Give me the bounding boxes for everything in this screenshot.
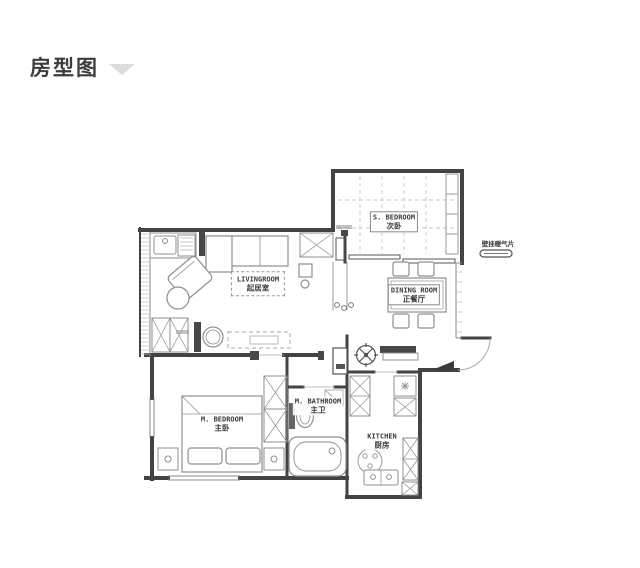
- label-m-bathroom: M. BATHROOM 主卫: [293, 396, 343, 415]
- corridor-wardrobe: [152, 318, 189, 352]
- radiator-symbol: [480, 250, 512, 257]
- floor-plan-image[interactable]: S. BEDROOM 次卧 DINING ROOM 正餐厅 LIVINGROOM…: [0, 0, 640, 568]
- corridor-door-jamb: [194, 322, 201, 352]
- tiny-text-annotation: [336, 225, 352, 229]
- label-living-room: LIVINGROOM 起居室: [231, 271, 285, 296]
- balcony-door-jamb: [199, 232, 205, 256]
- label-dining-room: DINING ROOM 正餐厅: [388, 284, 440, 305]
- tv-bench: [228, 332, 290, 348]
- balcony-counter: [150, 233, 196, 258]
- label-kitchen: KITCHEN 厨房: [365, 431, 399, 450]
- label-m-bedroom: M. BEDROOM 主卧: [199, 414, 245, 433]
- living-side-table: [167, 287, 189, 309]
- hall-door-jamb: [318, 351, 324, 360]
- partition-shelf: [333, 262, 353, 310]
- tiny-text-annotation: [176, 330, 189, 334]
- bathtub: [289, 437, 346, 476]
- kitchen-sink: [364, 470, 398, 485]
- living-cabinet-x: [300, 233, 333, 257]
- bedroom-wardrobe: [264, 376, 287, 442]
- kitchen-wok: [358, 449, 382, 473]
- hall-cabinet: [333, 348, 347, 374]
- label-wall-radiator: 壁挂暖气片: [482, 238, 515, 248]
- bed: [182, 396, 262, 472]
- floor-plan-drawing: [0, 0, 640, 568]
- bedroom-door-lintel: [250, 351, 259, 360]
- corridor-stool: [203, 327, 223, 347]
- fan-symbol: [354, 343, 378, 367]
- pass-counter: [380, 346, 418, 360]
- kitchen-hob-star: [401, 382, 409, 390]
- balcony-hatch: [141, 234, 149, 354]
- label-s-bedroom: S. BEDROOM 次卧: [370, 211, 418, 232]
- s-bedroom-closet: [446, 174, 458, 254]
- entry-door: [432, 338, 490, 370]
- floor-plan-page: 房型图: [0, 0, 640, 568]
